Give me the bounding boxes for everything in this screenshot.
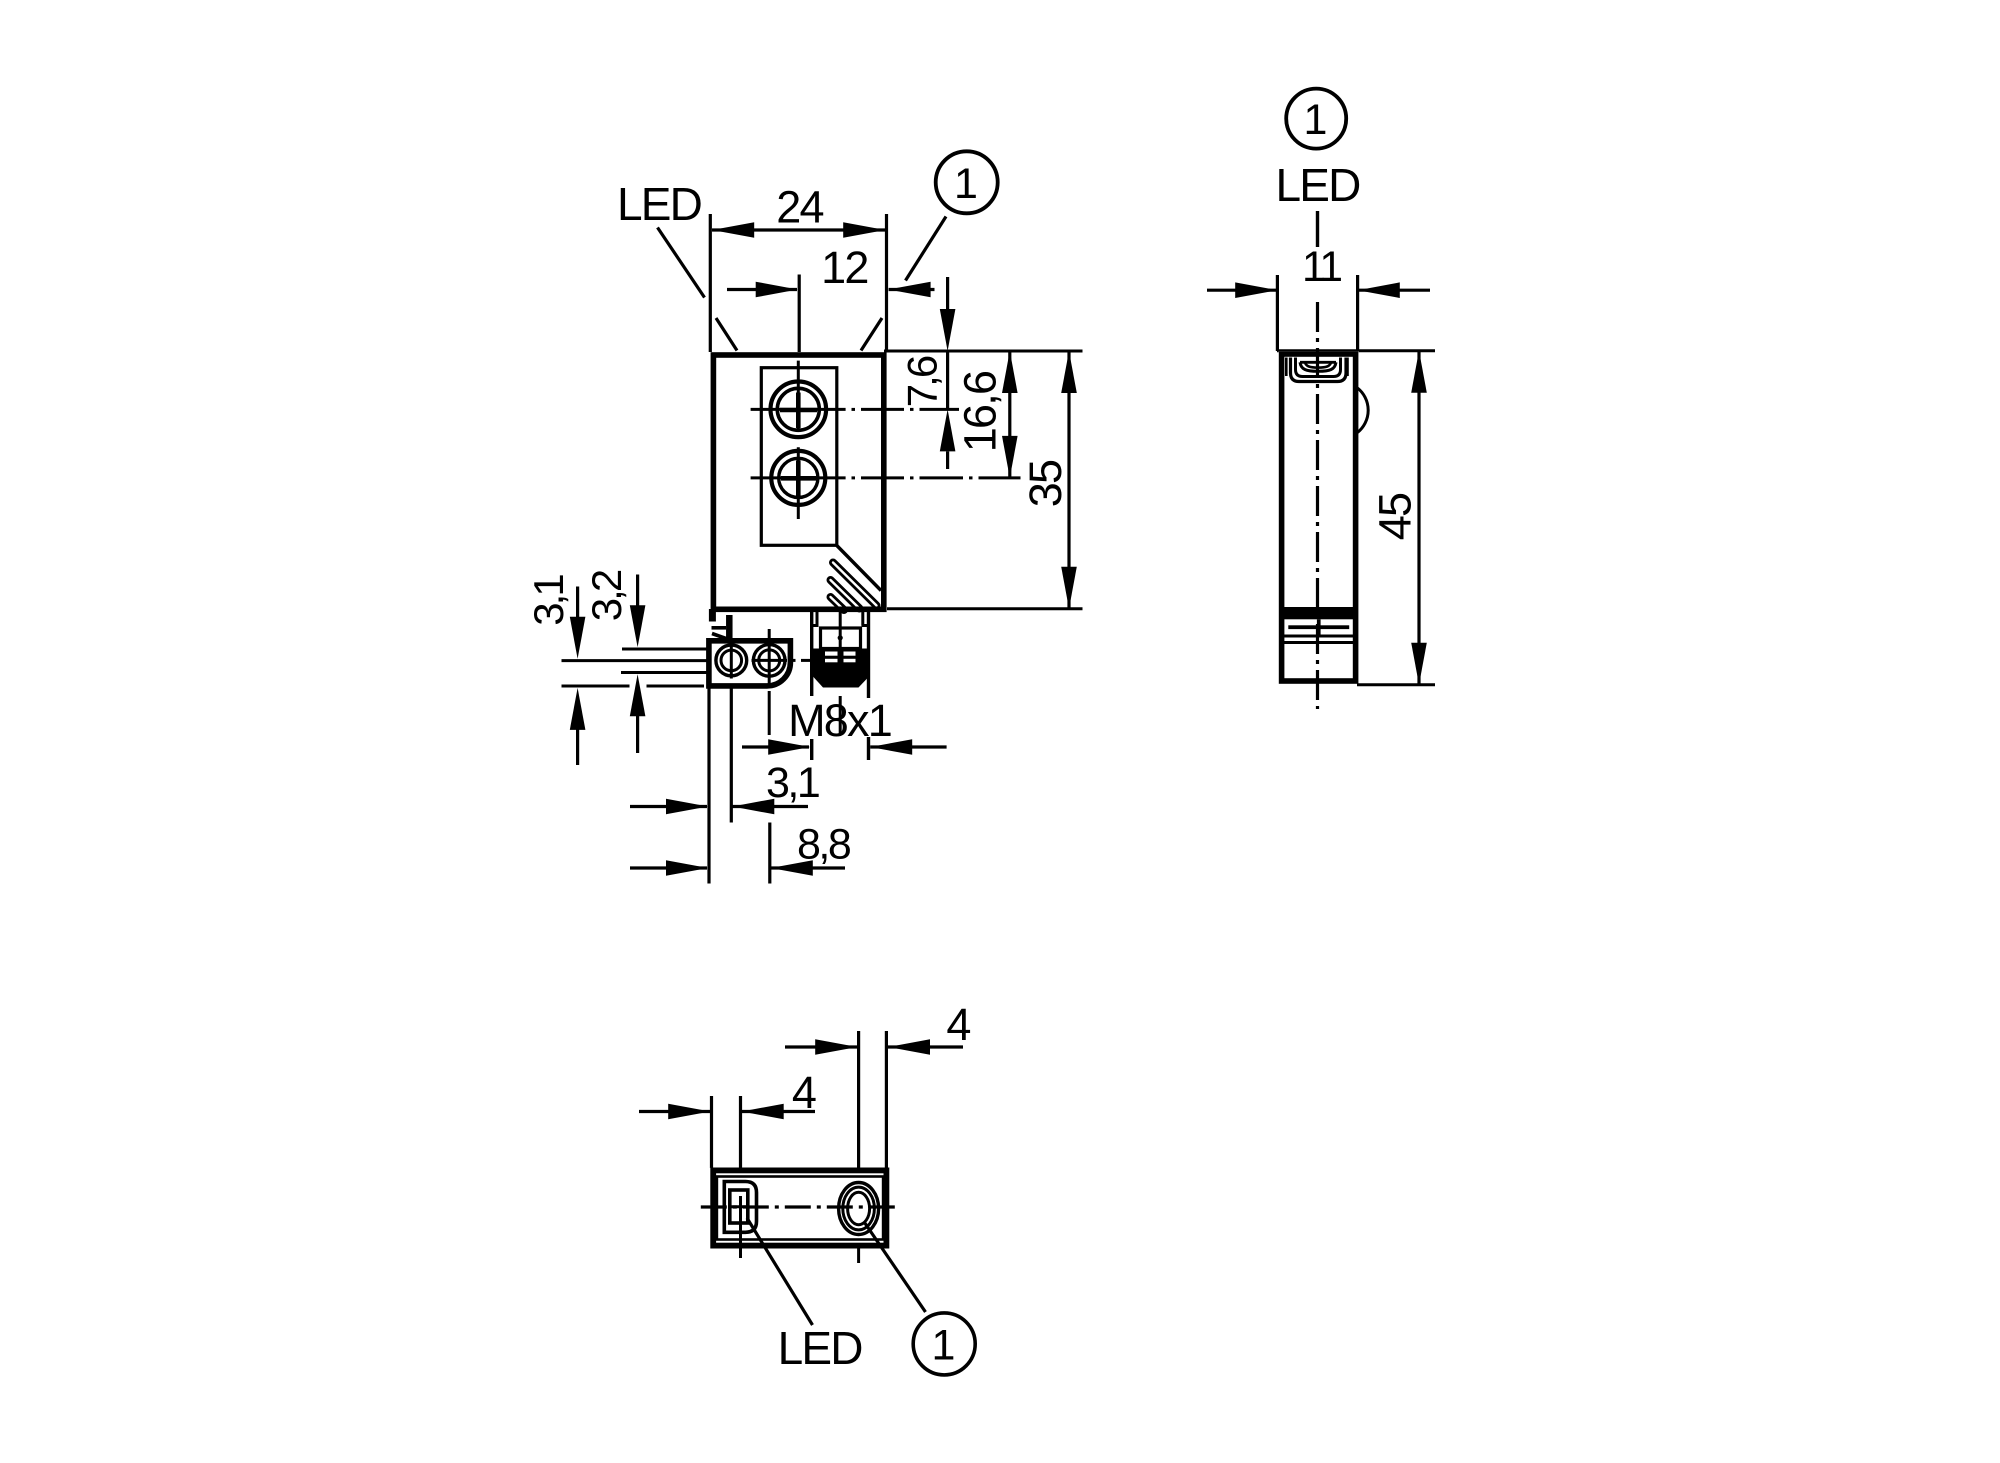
- svg-text:LED: LED: [617, 178, 702, 230]
- svg-text:7,6: 7,6: [899, 356, 946, 407]
- svg-text:M8x1: M8x1: [788, 695, 891, 746]
- svg-text:4: 4: [946, 999, 970, 1050]
- svg-text:3,1: 3,1: [766, 759, 819, 807]
- svg-text:8,8: 8,8: [797, 821, 851, 869]
- svg-text:3,2: 3,2: [583, 570, 630, 621]
- svg-text:3,1: 3,1: [525, 575, 572, 626]
- svg-text:1: 1: [931, 1322, 953, 1370]
- svg-text:LED: LED: [1275, 159, 1360, 211]
- svg-text:24: 24: [776, 182, 823, 233]
- svg-text:35: 35: [1020, 460, 1071, 507]
- svg-text:12: 12: [821, 242, 867, 293]
- svg-text:1: 1: [1303, 96, 1325, 144]
- svg-text:16,6: 16,6: [955, 371, 1006, 452]
- svg-text:LED: LED: [778, 1322, 863, 1374]
- svg-text:4: 4: [792, 1067, 816, 1118]
- svg-text:1: 1: [954, 160, 976, 208]
- svg-text:45: 45: [1370, 493, 1421, 540]
- svg-text:11: 11: [1302, 244, 1341, 291]
